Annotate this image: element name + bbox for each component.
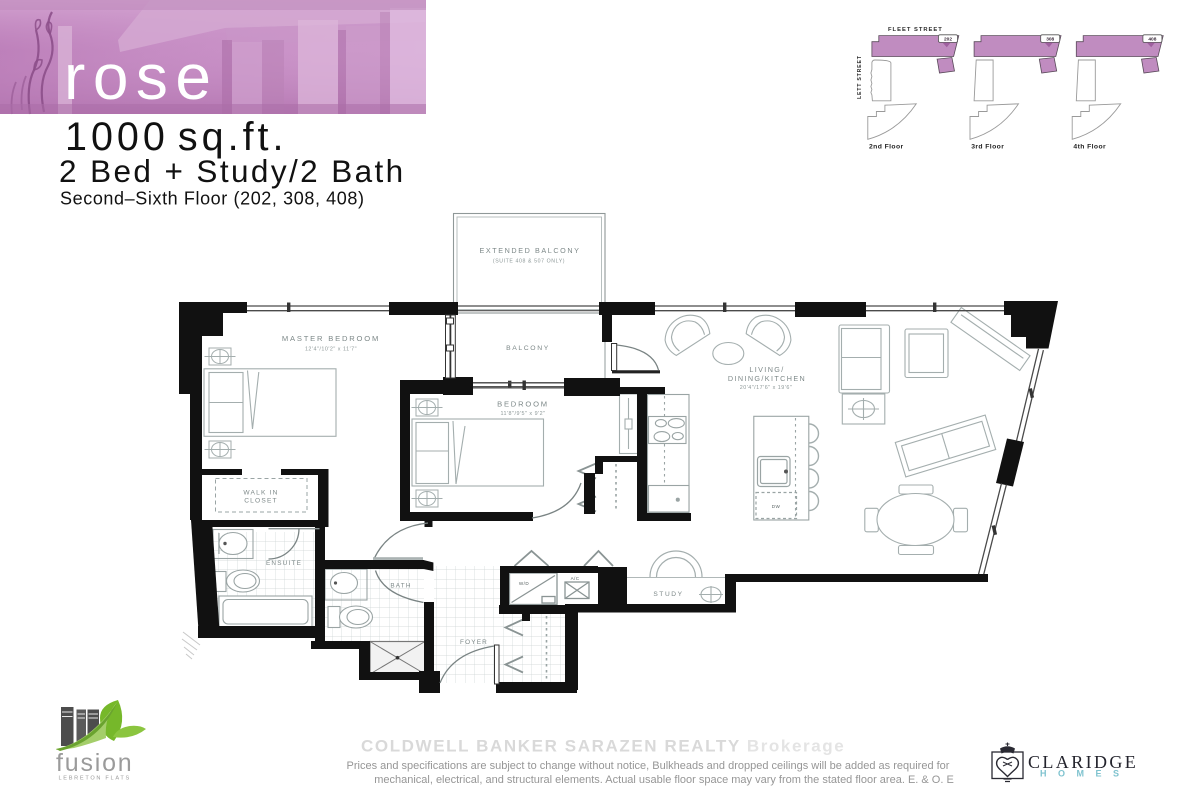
svg-text:12'4"/10'2" x 11'7": 12'4"/10'2" x 11'7": [305, 347, 357, 353]
svg-text:BALCONY: BALCONY: [506, 345, 550, 352]
svg-text:LIVING/: LIVING/: [749, 365, 784, 374]
svg-text:W/D: W/D: [519, 581, 529, 586]
svg-text:fusion: fusion: [56, 749, 134, 777]
svg-text:mechanical, electrical, and st: mechanical, electrical, and structural e…: [374, 774, 954, 786]
svg-text:2 Bed + Study/2 Bath: 2 Bed + Study/2 Bath: [59, 153, 406, 189]
svg-text:A/C: A/C: [571, 576, 580, 581]
svg-text:FOYER: FOYER: [460, 639, 488, 646]
svg-text:LEBRETON FLATS: LEBRETON FLATS: [59, 776, 131, 782]
svg-text:STUDY: STUDY: [653, 591, 683, 598]
svg-text:CLOSET: CLOSET: [244, 498, 278, 505]
svg-text:FLEET STREET: FLEET STREET: [888, 27, 943, 33]
svg-text:(SUITE 408 & 507 ONLY): (SUITE 408 & 507 ONLY): [493, 259, 565, 265]
svg-text:11'8"/9'5" x 9'2": 11'8"/9'5" x 9'2": [500, 411, 545, 417]
svg-text:20'4"/17'6" x 19'6": 20'4"/17'6" x 19'6": [740, 385, 793, 391]
svg-text:BATH: BATH: [390, 583, 411, 590]
svg-text:DINING/KITCHEN: DINING/KITCHEN: [728, 374, 806, 383]
svg-text:COLDWELL BANKER SARAZEN REALTY: COLDWELL BANKER SARAZEN REALTY Brokerage: [361, 737, 845, 756]
svg-text:202: 202: [944, 37, 952, 43]
svg-text:HOMES: HOMES: [1040, 769, 1131, 779]
svg-text:Second–Sixth Floor (202, 308,: Second–Sixth Floor (202, 308, 408): [60, 189, 365, 209]
svg-text:Prices and specifications are: Prices and specifications are subject to…: [347, 760, 950, 772]
svg-text:EXTENDED BALCONY: EXTENDED BALCONY: [479, 246, 580, 255]
svg-text:WALK IN: WALK IN: [243, 490, 278, 497]
svg-text:ENSUITE: ENSUITE: [266, 560, 302, 567]
svg-text:rose: rose: [64, 41, 219, 113]
svg-text:4th Floor: 4th Floor: [1073, 144, 1106, 151]
svg-text:DW: DW: [772, 504, 781, 509]
svg-text:408: 408: [1148, 37, 1156, 43]
svg-text:BEDROOM: BEDROOM: [497, 400, 549, 409]
svg-text:2nd Floor: 2nd Floor: [869, 144, 904, 151]
svg-text:MASTER BEDROOM: MASTER BEDROOM: [282, 334, 380, 343]
svg-text:LETT STREET: LETT STREET: [857, 55, 863, 99]
svg-text:308: 308: [1046, 37, 1054, 43]
svg-text:3rd Floor: 3rd Floor: [971, 144, 1004, 151]
